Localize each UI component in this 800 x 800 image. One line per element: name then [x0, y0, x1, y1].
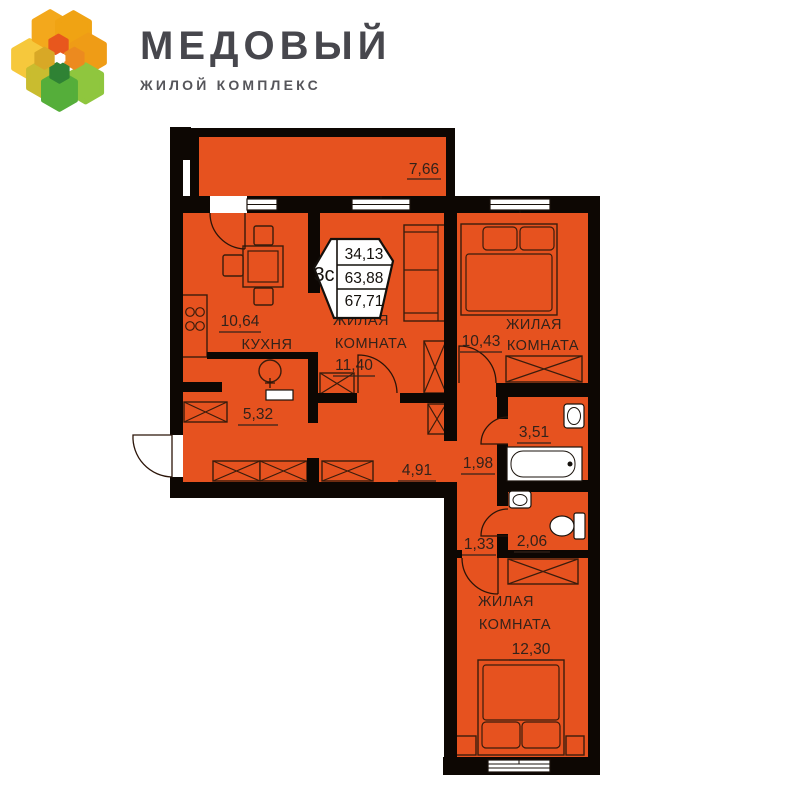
wc-area-label: 2,06 [517, 533, 547, 550]
bathroom-area-label: 3,51 [519, 424, 549, 441]
floor-plan: 7,66 10,64 КУХНЯ ЖИЛАЯ КОМНАТА 11,40 ЖИЛ… [0, 0, 800, 800]
corridor-area-label: 4,91 [402, 462, 432, 479]
balcony-area-label: 7,66 [409, 161, 439, 178]
bedroom-top-name-label-2: КОМНАТА [507, 338, 579, 354]
bedroom-bottom-name-label-2: КОМНАТА [479, 617, 551, 633]
bedroom-bottom-area-label: 12,30 [512, 641, 551, 658]
bedroom-top-name-label-1: ЖИЛАЯ [506, 317, 562, 333]
bathtub-icon [507, 447, 582, 481]
wc-sink-icon [509, 491, 531, 508]
badge-living-area: 34,13 [345, 246, 384, 263]
kitchen-name-label: КУХНЯ [242, 337, 293, 353]
page: МЕДОВЫЙ ЖИЛОЙ КОМПЛЕКС [0, 0, 800, 800]
bed-top-icon [461, 224, 557, 315]
entry-door-icon [133, 435, 172, 477]
living-room-area-label: 11,40 [335, 357, 373, 374]
badge-total-with-balcony: 67,71 [345, 293, 384, 310]
bathroom-sink-icon [564, 404, 584, 428]
bedroom-bottom-name-label-1: ЖИЛАЯ [478, 594, 534, 610]
living-room-name-label-2: КОМНАТА [335, 336, 407, 352]
hallway-area-label: 5,32 [243, 406, 273, 423]
badge-total-area: 63,88 [345, 270, 384, 287]
sofa-icon [404, 225, 448, 321]
badge-rooms-label: 3с [313, 264, 334, 286]
kitchen-area-label: 10,64 [221, 313, 260, 330]
hall-small-area-label: 1,98 [463, 455, 493, 472]
hall-tiny-area-label: 1,33 [464, 536, 494, 553]
bedroom-top-area-label: 10,43 [462, 333, 501, 350]
